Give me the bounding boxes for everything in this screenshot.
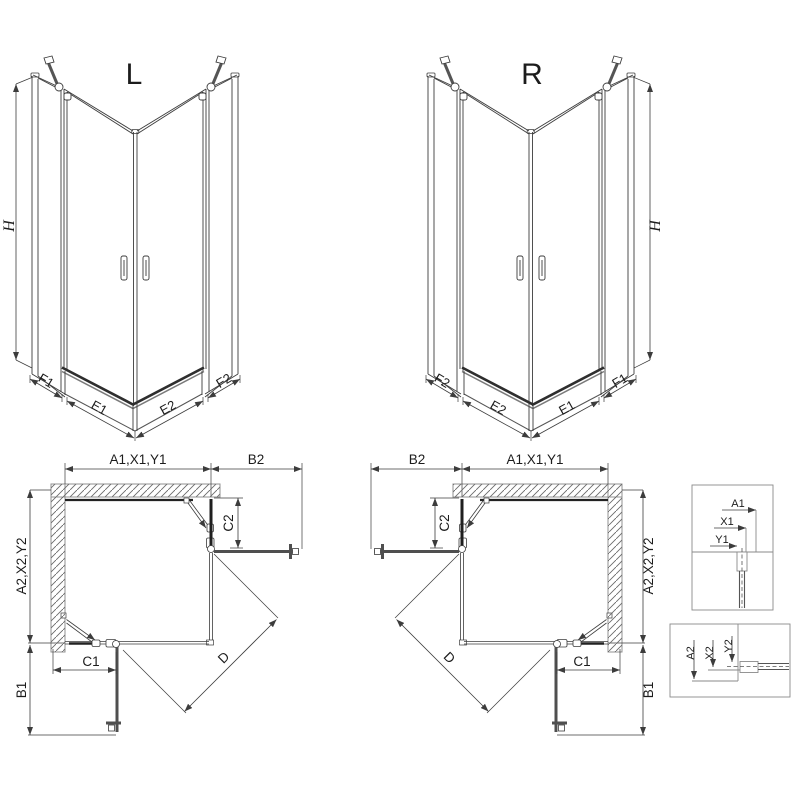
detail-label-y1: Y1 <box>715 534 728 546</box>
detail-label-y2: Y2 <box>723 639 735 652</box>
dim-label-c2-right: C2 <box>437 514 452 531</box>
diagram-svg: L H F1 E1 E2 F2 R H F1 E1 E2 F2 A1,X1,Y1… <box>0 0 800 800</box>
dim-label-side-width-right: A2,X2,Y2 <box>641 537 656 594</box>
dim-label-b1-left: B1 <box>14 682 29 699</box>
labels-layer: L H F1 E1 E2 F2 R H F1 E1 E2 F2 A1,X1,Y1… <box>1 58 745 698</box>
dim-label-b2-right: B2 <box>409 452 426 467</box>
variant-title-left: L <box>126 58 143 91</box>
dim-label-e2-left: E2 <box>157 397 178 418</box>
dim-label-c1-right: C1 <box>573 654 590 669</box>
dim-label-side-width-left: A2,X2,Y2 <box>14 537 29 594</box>
detail-label-a2: A2 <box>685 646 697 659</box>
detail-label-x1: X1 <box>720 516 733 528</box>
right-variant-plan <box>371 463 645 735</box>
dim-label-d-left: D <box>215 649 233 667</box>
dim-label-height-left: H <box>1 219 18 233</box>
dim-label-d-right: D <box>441 649 459 667</box>
variant-title-right: R <box>521 58 543 91</box>
dim-label-b1-right: B1 <box>641 682 656 699</box>
detail-label-x2: X2 <box>704 646 716 659</box>
shower-enclosure-technical-diagram: L H F1 E1 E2 F2 R H F1 E1 E2 F2 A1,X1,Y1… <box>0 0 800 800</box>
dim-label-top-width-left: A1,X1,Y1 <box>109 452 166 467</box>
dim-label-top-width-right: A1,X1,Y1 <box>506 452 563 467</box>
dim-label-b2-left: B2 <box>248 452 265 467</box>
detail-label-a1: A1 <box>731 498 744 510</box>
dim-label-height-right: H <box>647 219 664 233</box>
left-variant-plan <box>28 463 302 735</box>
wall-hatching <box>51 484 622 652</box>
dim-label-c1-left: C1 <box>82 654 99 669</box>
dim-label-c2-left: C2 <box>221 514 236 531</box>
dim-label-e2-right: E2 <box>488 397 509 418</box>
